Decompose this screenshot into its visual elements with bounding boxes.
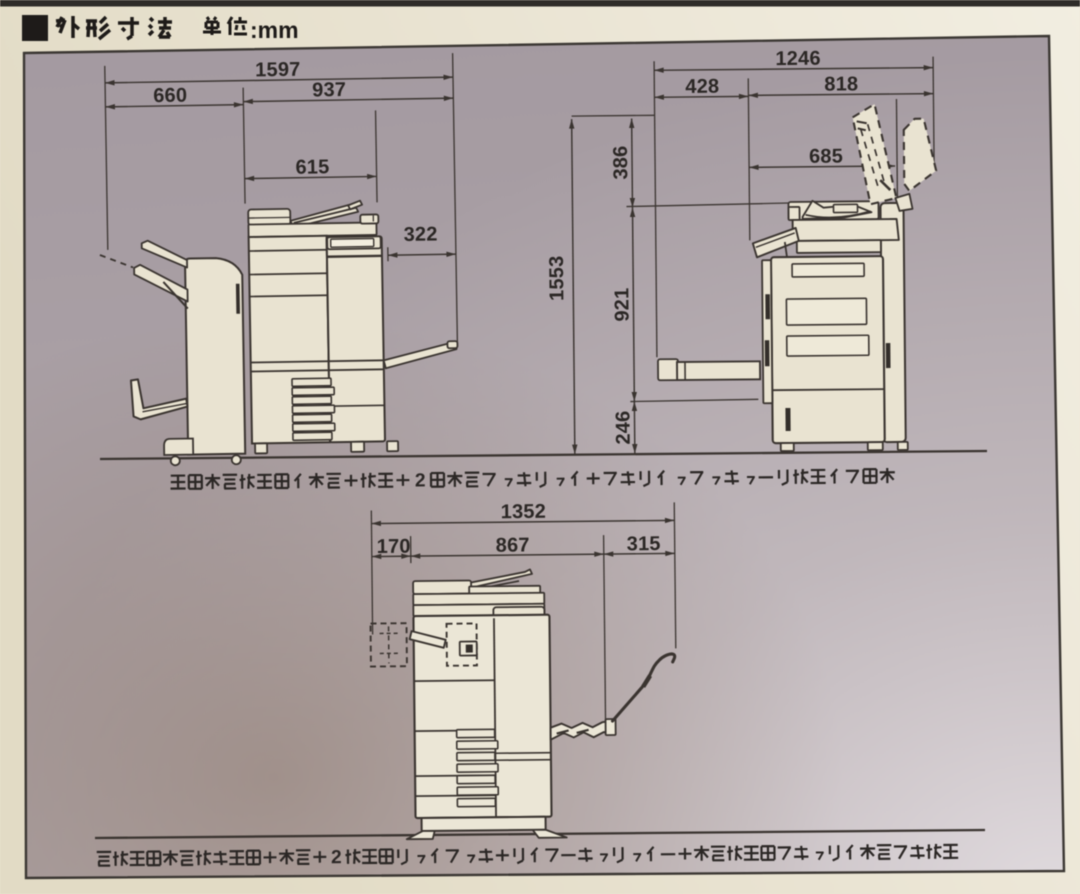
svg-text:1553: 1553 bbox=[546, 255, 568, 301]
svg-text:615: 615 bbox=[295, 156, 329, 179]
svg-text::mm: :mm bbox=[250, 17, 299, 43]
svg-text:818: 818 bbox=[824, 73, 858, 95]
svg-text:1597: 1597 bbox=[255, 59, 301, 82]
svg-text:386: 386 bbox=[610, 146, 632, 180]
svg-text:322: 322 bbox=[403, 223, 437, 246]
svg-text:170: 170 bbox=[377, 536, 411, 558]
svg-text:685: 685 bbox=[809, 145, 843, 167]
svg-text:246: 246 bbox=[612, 411, 634, 445]
svg-text:315: 315 bbox=[627, 533, 661, 555]
svg-text:1246: 1246 bbox=[775, 48, 821, 70]
svg-text:2: 2 bbox=[331, 847, 342, 868]
svg-text:921: 921 bbox=[611, 288, 633, 322]
svg-text:428: 428 bbox=[685, 76, 719, 98]
svg-text:867: 867 bbox=[496, 534, 530, 556]
svg-text:937: 937 bbox=[312, 79, 346, 102]
svg-text:2: 2 bbox=[415, 470, 426, 491]
svg-text:660: 660 bbox=[153, 85, 187, 108]
svg-text:1352: 1352 bbox=[501, 501, 547, 523]
